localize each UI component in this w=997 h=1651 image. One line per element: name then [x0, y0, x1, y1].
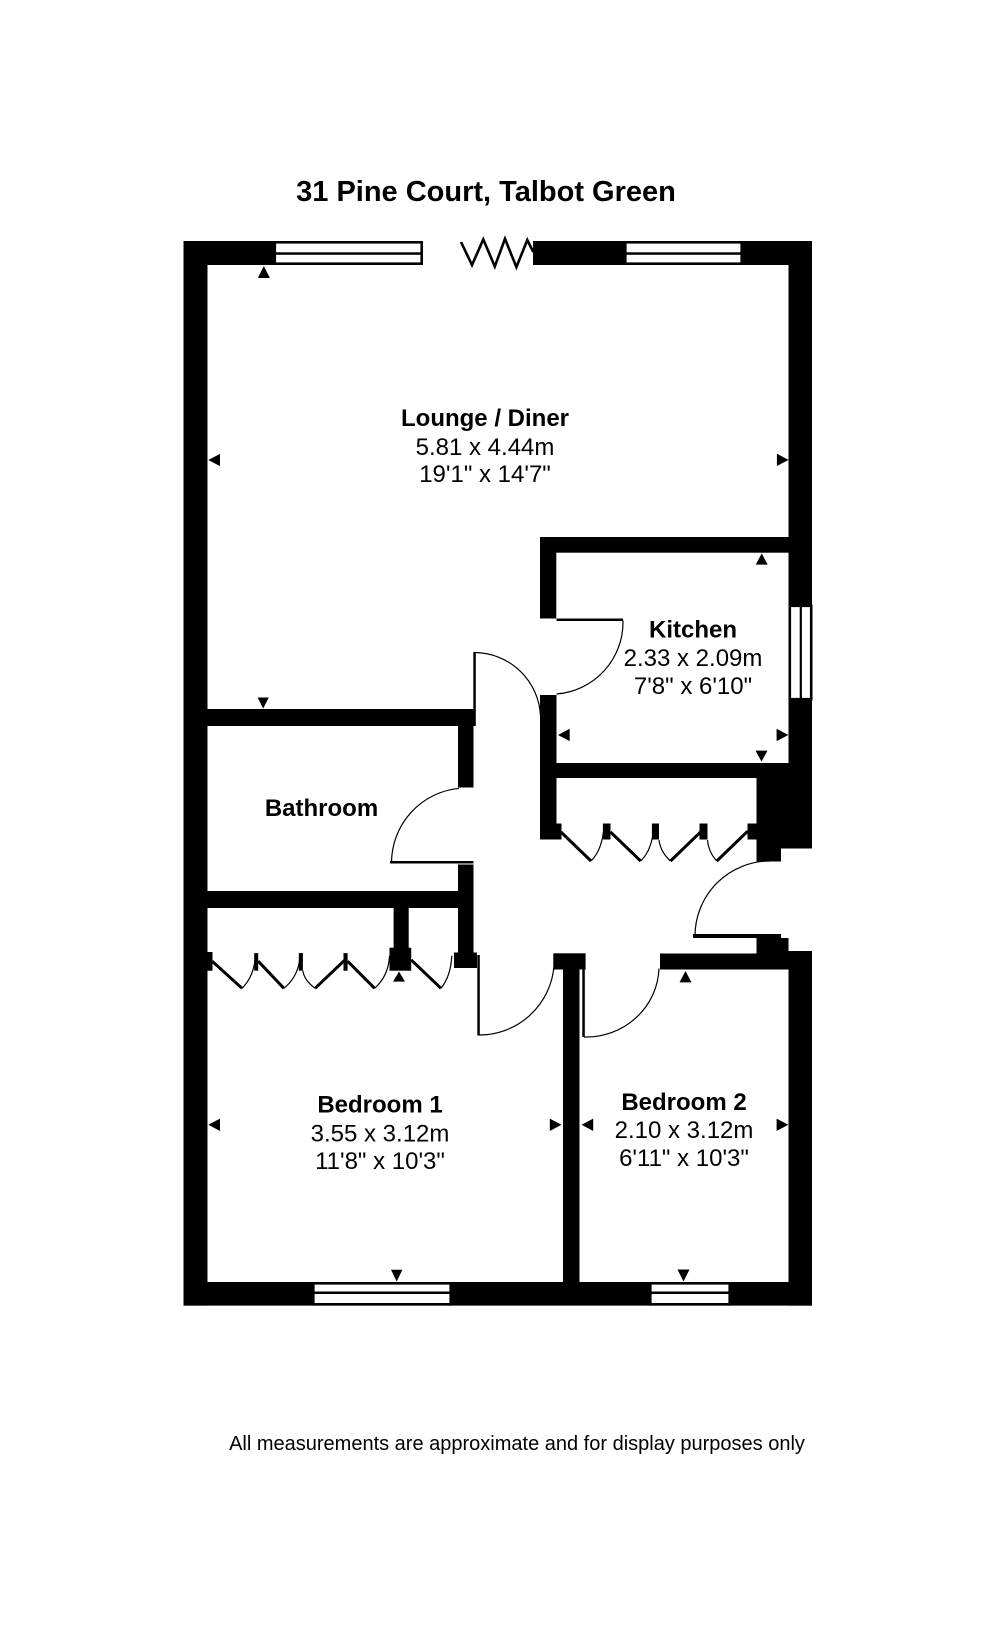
svg-text:19'1" x 14'7": 19'1" x 14'7"	[419, 461, 551, 488]
svg-text:6'11" x 10'3": 6'11" x 10'3"	[619, 1145, 749, 1172]
svg-text:Bathroom: Bathroom	[265, 795, 378, 822]
svg-text:11'8" x 10'3": 11'8" x 10'3"	[315, 1148, 445, 1175]
svg-text:2.10 x 3.12m: 2.10 x 3.12m	[615, 1117, 754, 1144]
svg-text:Kitchen: Kitchen	[649, 617, 737, 644]
svg-text:All measurements are approxima: All measurements are approximate and for…	[229, 1433, 805, 1455]
svg-text:Lounge / Diner: Lounge / Diner	[401, 405, 569, 432]
svg-text:31 Pine Court, Talbot Green: 31 Pine Court, Talbot Green	[296, 176, 676, 208]
svg-text:5.81 x 4.44m: 5.81 x 4.44m	[416, 434, 555, 461]
svg-text:2.33 x 2.09m: 2.33 x 2.09m	[624, 645, 763, 672]
svg-text:Bedroom 2: Bedroom 2	[621, 1089, 746, 1116]
svg-text:3.55 x 3.12m: 3.55 x 3.12m	[311, 1121, 450, 1148]
svg-text:7'8" x 6'10": 7'8" x 6'10"	[634, 673, 752, 700]
svg-text:Bedroom 1: Bedroom 1	[317, 1092, 442, 1119]
